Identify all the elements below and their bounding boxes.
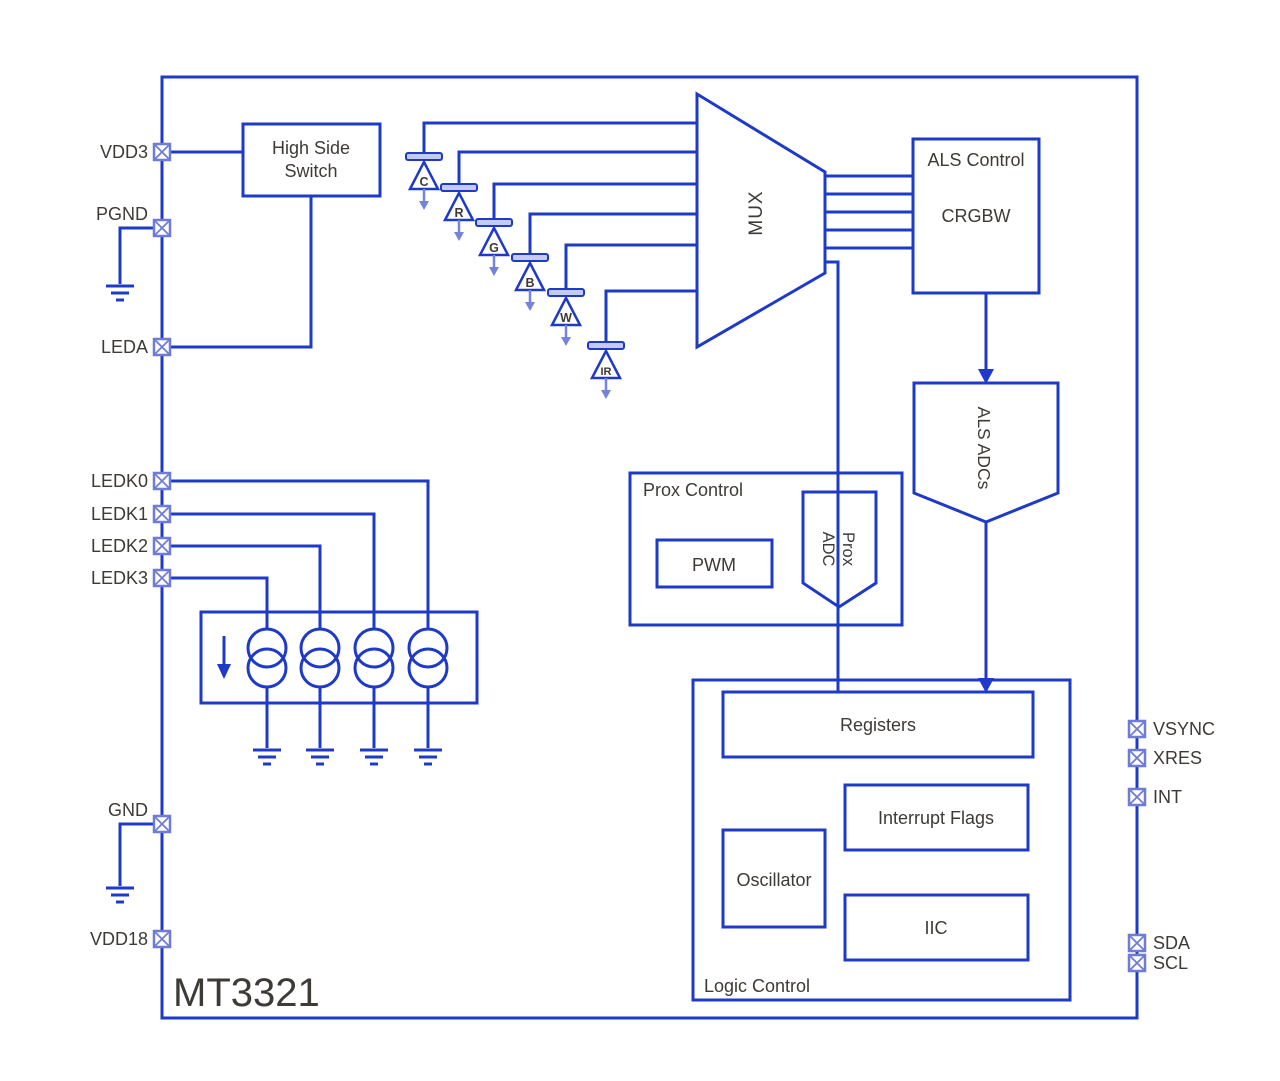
photodiode-b-letter: B — [525, 276, 534, 290]
photodiode-c-bar — [406, 153, 442, 160]
registers-label: Registers — [840, 715, 916, 735]
photodiode-r-letter: R — [454, 206, 463, 220]
block-oscillator: Oscillator — [723, 830, 825, 927]
pin-sda-label: SDA — [1153, 933, 1190, 953]
pin-ledk1-label: LEDK1 — [91, 504, 148, 524]
photodiode-r-arrowhead — [454, 232, 464, 241]
photodiode-w-bar — [548, 289, 584, 296]
current-source-4 — [409, 629, 447, 687]
als-control-body-label: CRGBW — [942, 206, 1011, 226]
photodiode-w-letter: W — [560, 311, 572, 325]
ground-symbol-cs4 — [414, 750, 442, 764]
pin-ledk0: LEDK0 — [91, 471, 170, 491]
pwm-label: PWM — [692, 555, 736, 575]
wire-ledk2 — [163, 546, 320, 629]
block-pwm: PWM — [657, 540, 772, 587]
prox-adc-label-line1: Prox — [839, 532, 857, 567]
als-adcs-label: ALS ADCs — [974, 407, 994, 490]
pin-vdd3-label: VDD3 — [100, 142, 148, 162]
photodiode-ir-letter: IR — [601, 366, 612, 378]
block-als-adcs: ALS ADCs — [914, 369, 1058, 522]
photodiode-g-arrowhead — [489, 267, 499, 276]
pin-pgnd: PGND — [96, 204, 170, 236]
pin-sda: SDA — [1129, 933, 1190, 953]
wire-diode-b-mux — [530, 214, 697, 258]
wire-ledk0 — [163, 481, 428, 629]
interrupt-flags-label: Interrupt Flags — [878, 808, 994, 828]
pins-right: VSYNC XRES INT SDA SCL — [1129, 719, 1215, 973]
mux-label: MUX — [746, 190, 767, 235]
wire-diode-w-mux — [566, 245, 697, 293]
pin-vdd18-label: VDD18 — [90, 929, 148, 949]
pin-xres: XRES — [1129, 748, 1202, 768]
photodiode-ir-bar — [588, 342, 624, 349]
pin-xres-label: XRES — [1153, 748, 1202, 768]
ground-symbol-cs3 — [360, 750, 388, 764]
photodiode-r: R — [441, 184, 477, 241]
current-source-3 — [355, 629, 393, 687]
photodiode-w-arrowhead — [561, 337, 571, 346]
prox-adc-label-line2: ADC — [819, 532, 837, 567]
iic-label: IIC — [924, 918, 947, 938]
block-mux: MUX — [697, 94, 825, 347]
pin-leda: LEDA — [101, 337, 170, 357]
pin-ledk0-label: LEDK0 — [91, 471, 148, 491]
wire-diode-g-mux — [494, 184, 697, 223]
pin-vsync: VSYNC — [1129, 719, 1215, 739]
schematic-page: High Side Switch — [0, 0, 1280, 1081]
block-interrupt-flags: Interrupt Flags — [845, 785, 1028, 850]
current-direction-arrowhead — [217, 664, 231, 679]
logic-control-label: Logic Control — [704, 976, 810, 996]
photodiode-b-bar — [512, 254, 548, 261]
photodiode-c-arrowhead — [419, 201, 429, 210]
block-current-sources — [201, 612, 477, 764]
current-source-2 — [301, 629, 339, 687]
pin-ledk1: LEDK1 — [91, 504, 170, 524]
photodiode-g-letter: G — [489, 241, 499, 255]
ground-symbol-pgnd — [106, 286, 134, 300]
wire-hss-leda — [162, 196, 311, 347]
wires — [120, 123, 697, 886]
chip-name: MT3321 — [173, 971, 320, 1015]
pin-int-label: INT — [1153, 787, 1182, 807]
photodiode-w: W — [548, 289, 584, 346]
block-high-side-switch: High Side Switch — [243, 124, 380, 196]
photodiode-ir-arrowhead — [601, 390, 611, 399]
ground-symbol-cs1 — [253, 750, 281, 764]
pin-ledk2-label: LEDK2 — [91, 536, 148, 556]
photodiode-g: G — [476, 219, 512, 276]
pin-pgnd-label: PGND — [96, 204, 148, 224]
pin-int: INT — [1129, 787, 1182, 807]
pin-vdd3: VDD3 — [100, 142, 170, 162]
ground-symbol-cs2 — [306, 750, 334, 764]
high-side-switch-box — [243, 124, 380, 196]
pin-vsync-label: VSYNC — [1153, 719, 1215, 739]
block-iic: IIC — [845, 895, 1028, 960]
block-diagram-mt3321: High Side Switch — [0, 0, 1280, 1081]
high-side-switch-label-line2: Switch — [284, 161, 337, 181]
pin-ledk3: LEDK3 — [91, 568, 170, 588]
pin-gnd-label: GND — [108, 800, 148, 820]
photodiode-r-bar — [441, 184, 477, 191]
pin-scl: SCL — [1129, 953, 1188, 973]
pins-left: VDD3 PGND LEDA LEDK0 LEDK1 LEDK2 LEDK3 — [90, 142, 170, 949]
photodiode-g-bar — [476, 219, 512, 226]
photodiode-b: B — [512, 254, 548, 311]
photodiode-ir: IR — [588, 342, 624, 399]
pin-ledk3-label: LEDK3 — [91, 568, 148, 588]
wire-diode-ir-mux — [606, 291, 697, 346]
als-control-label: ALS Control — [927, 150, 1024, 170]
block-als-control: ALS Control CRGBW — [913, 139, 1039, 293]
high-side-switch-label-line1: High Side — [272, 138, 350, 158]
photodiode-b-arrowhead — [525, 302, 535, 311]
pin-scl-label: SCL — [1153, 953, 1188, 973]
current-source-1 — [248, 629, 286, 687]
pin-leda-label: LEDA — [101, 337, 148, 357]
oscillator-label: Oscillator — [736, 870, 811, 890]
photodiode-c-letter: C — [419, 175, 428, 189]
current-source-box — [201, 612, 477, 703]
ground-symbol-gnd — [106, 888, 134, 902]
prox-control-label: Prox Control — [643, 480, 743, 500]
wire-gnd-ground — [120, 824, 163, 886]
photodiode-c: C — [406, 153, 442, 210]
wire-ledk3 — [163, 578, 267, 629]
pin-vdd18: VDD18 — [90, 929, 170, 949]
pin-ledk2: LEDK2 — [91, 536, 170, 556]
